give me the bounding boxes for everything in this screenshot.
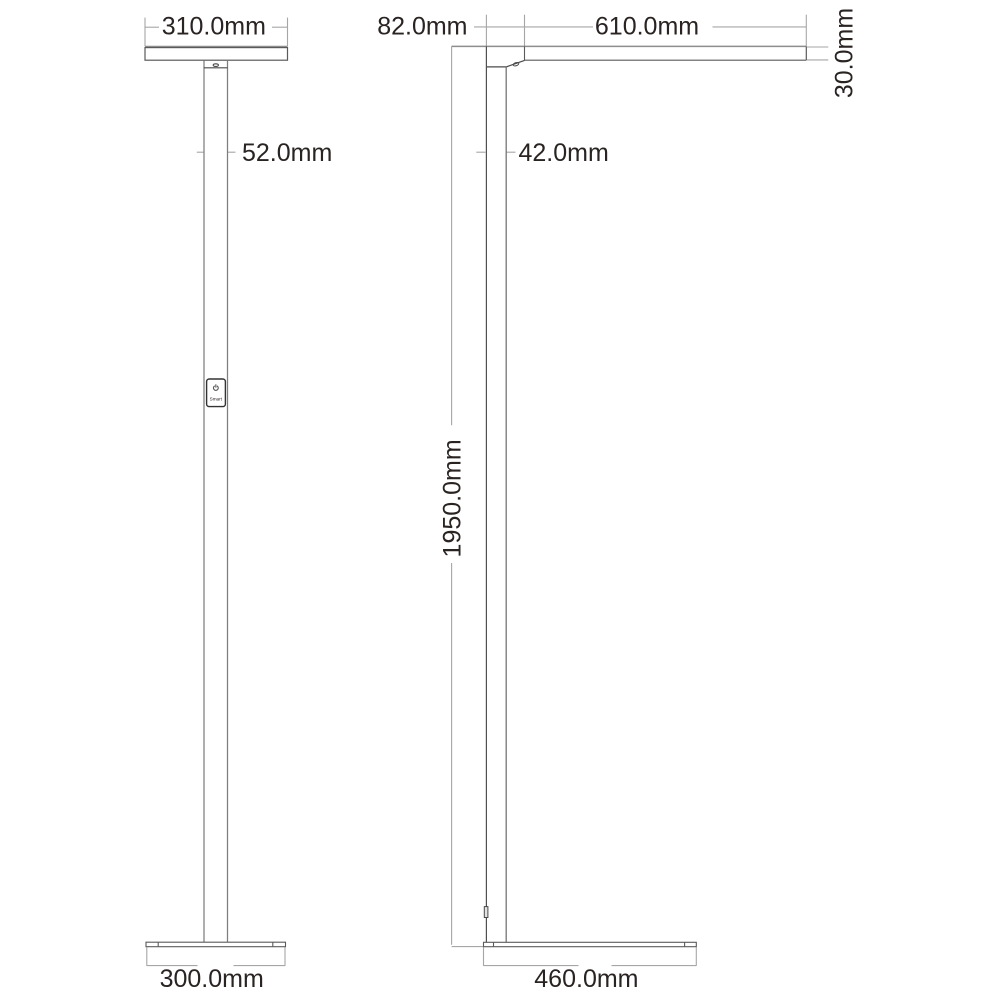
svg-text:300.0mm: 300.0mm [160, 965, 264, 993]
svg-text:42.0mm: 42.0mm [519, 139, 609, 167]
svg-text:310.0mm: 310.0mm [162, 12, 266, 40]
svg-text:Smart: Smart [210, 397, 223, 402]
svg-text:1950.0mm: 1950.0mm [438, 439, 466, 557]
svg-text:610.0mm: 610.0mm [595, 12, 699, 40]
svg-text:460.0mm: 460.0mm [534, 965, 638, 993]
svg-text:52.0mm: 52.0mm [242, 139, 332, 167]
svg-text:30.0mm: 30.0mm [830, 8, 858, 98]
svg-text:82.0mm: 82.0mm [377, 12, 467, 40]
